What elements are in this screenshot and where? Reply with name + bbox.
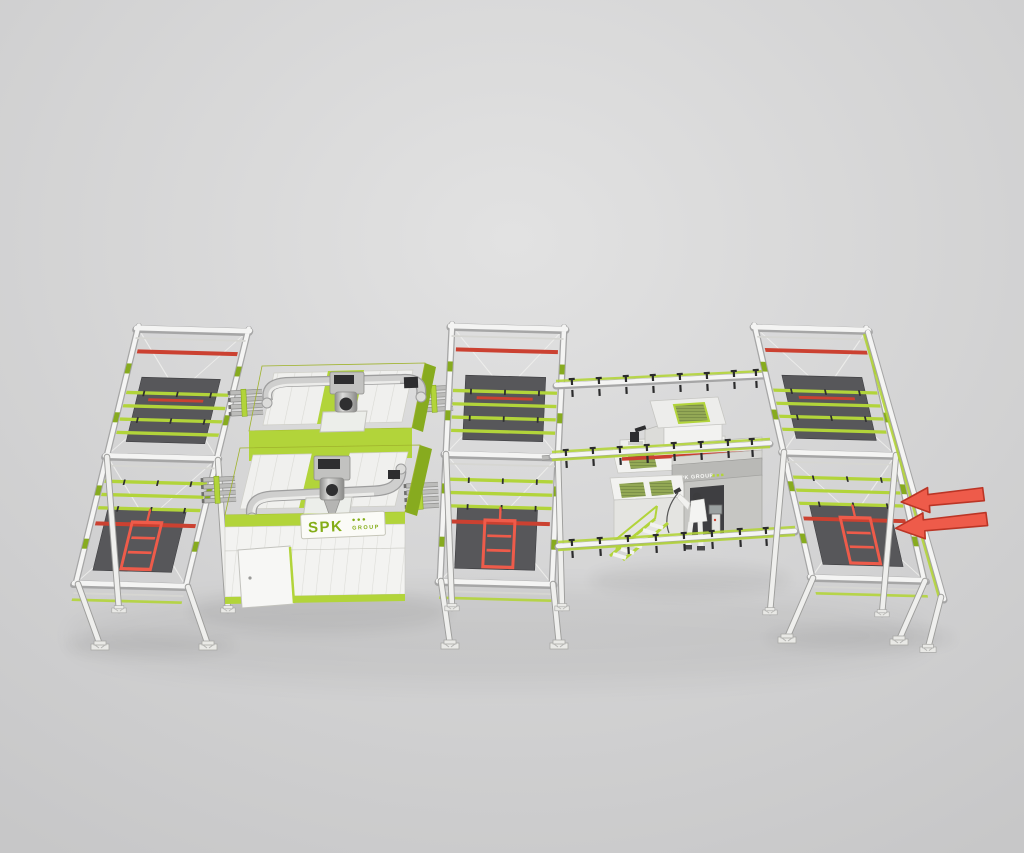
spk-logo-text: SPK	[308, 518, 344, 537]
booth-roof-filter-2	[618, 481, 647, 499]
pedestal-screen	[709, 505, 722, 514]
open-access-door	[238, 546, 294, 608]
motor-box-front	[388, 470, 400, 479]
booth-header-dots: ■ ■ ■	[712, 472, 724, 479]
spk-coating-line-render: SPK ●●● GROUP	[0, 0, 1024, 853]
render-canvas: SPK ●●● GROUP	[0, 0, 1024, 853]
motor-box-rear	[404, 377, 418, 388]
spk-logo-plate: SPK ●●● GROUP	[301, 511, 386, 539]
booth-roof-filter-3	[648, 479, 675, 497]
process-cabinet-front: SPK ●●● GROUP	[225, 445, 432, 608]
spk-logo-dots: ●●●	[352, 517, 368, 524]
spk-logo-suffix: GROUP	[352, 524, 380, 531]
oven-roof-filter	[674, 403, 709, 423]
